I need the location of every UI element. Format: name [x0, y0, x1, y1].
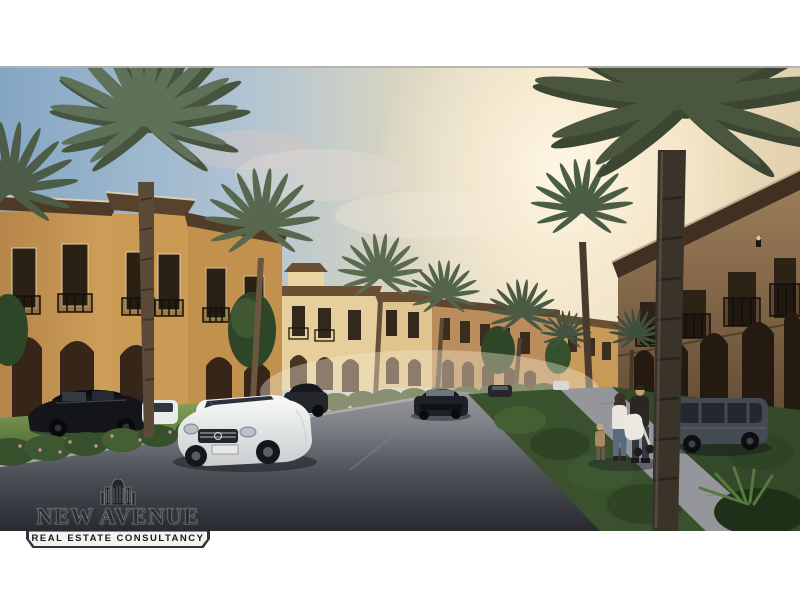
cloud	[335, 191, 525, 239]
tagline-text: REAL ESTATE CONSULTANCY	[32, 533, 205, 544]
distant-dark-car	[488, 385, 512, 397]
real-estate-listing-image: NEW AVENUE REAL ESTATE CONSULTANCY	[0, 0, 800, 600]
distant-white-car	[553, 381, 569, 390]
grey-car-right	[668, 398, 772, 456]
photo-top-edge	[0, 66, 800, 68]
tagline-ribbon: REAL ESTATE CONSULTANCY	[26, 529, 210, 548]
street-render-photo	[0, 66, 800, 531]
license-plate	[212, 445, 238, 454]
